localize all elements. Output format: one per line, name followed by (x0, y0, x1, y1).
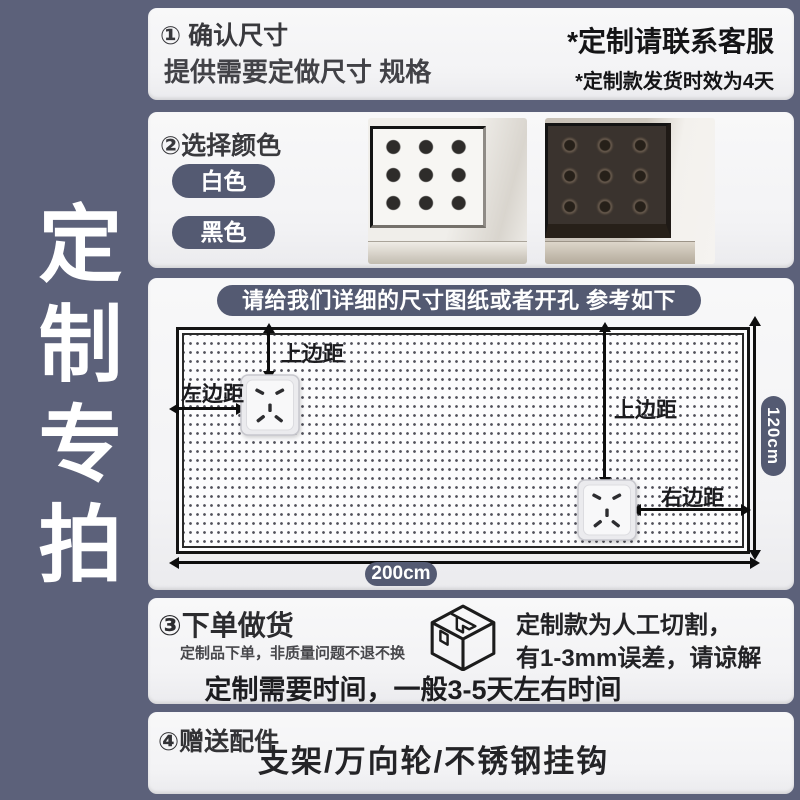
black-pegboard-panel (545, 123, 671, 238)
board-height-value: 120cm (761, 396, 786, 476)
white-pegboard-panel (370, 126, 486, 228)
choose-color-panel: ②选择颜色 白色 黑色 (148, 112, 794, 268)
color-option-black[interactable]: 黑色 (172, 216, 275, 249)
contact-service-note: *定制请联系客服 (567, 20, 774, 60)
top-margin-arrow (267, 332, 270, 372)
peg-holes-grid (552, 130, 658, 222)
board-height-arrow (753, 325, 756, 551)
top-margin-label: 上边距 (281, 338, 344, 368)
section1-heading: ① 确认尺寸 (160, 16, 288, 52)
gift-accessories-panel: ④赠送配件 支架/万向轮/不锈钢挂钩 (148, 712, 794, 794)
left-margin-label: 左边距 (181, 378, 244, 408)
confirm-size-panel: ① 确认尺寸 提供需要定做尺寸 规格 *定制请联系客服 *定制款发货时效为4天 (148, 8, 794, 100)
top-margin-label: 上边距 (614, 394, 677, 424)
package-box-icon (426, 603, 500, 676)
color-option-white[interactable]: 白色 (172, 164, 275, 198)
order-production-panel: ③下单做货 定制品下单，非质量问题不退不换 定制款为人工切割， 有1-3mm误差… (148, 598, 794, 704)
custom-order-infographic: 定制专拍 ① 确认尺寸 提供需要定做尺寸 规格 *定制请联系客服 *定制款发货时… (0, 0, 800, 800)
board-width-arrow (178, 561, 751, 564)
production-time-note: 定制需要时间，一般3-5天左右时间 (148, 668, 678, 707)
board-width-value: 200cm (365, 562, 437, 586)
socket-icon (239, 374, 301, 441)
diagram-title-pill: 请给我们详细的尺寸图纸或者开孔 参考如下 (217, 285, 701, 316)
white-pegboard-photo (368, 118, 527, 264)
top-margin-arrow (603, 331, 606, 478)
section1-notes: *定制请联系客服 *定制款发货时效为4天 (567, 20, 774, 94)
socket-icon (576, 479, 638, 546)
dimension-diagram-panel: 请给我们详细的尺寸图纸或者开孔 参考如下 (148, 278, 794, 590)
black-pegboard-photo (545, 118, 715, 264)
peg-holes-grid (377, 133, 475, 217)
section3-heading: ③下单做货 (158, 604, 294, 644)
delivery-time-note: *定制款发货时效为4天 (567, 65, 774, 94)
manual-cutting-line1: 定制款为人工切割， (516, 605, 732, 640)
section1-subheading: 提供需要定做尺寸 规格 (164, 52, 431, 89)
sidebar-vertical-title: 定制专拍 (26, 200, 122, 600)
right-margin-label: 右边距 (661, 482, 724, 512)
section2-heading: ②选择颜色 (160, 126, 281, 162)
accessories-list: 支架/万向轮/不锈钢挂钩 (258, 736, 609, 781)
black-pegboard-base (545, 241, 695, 264)
white-pegboard-base (368, 241, 527, 264)
no-return-note: 定制品下单，非质量问题不退不换 (180, 642, 405, 663)
